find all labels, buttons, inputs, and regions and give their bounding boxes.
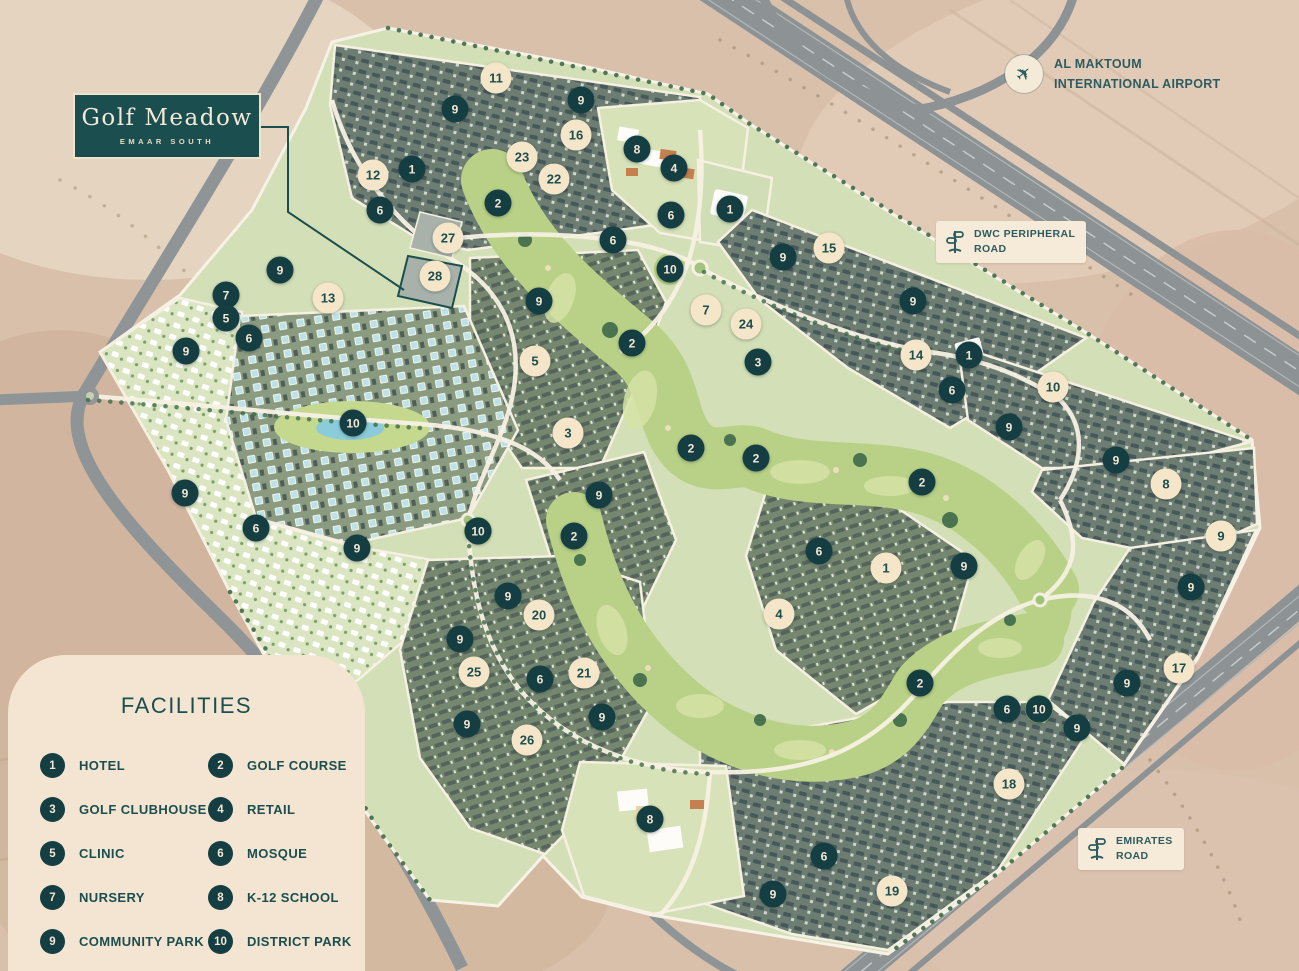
map-marker-neighborhood-13[interactable]: 13 — [313, 283, 344, 314]
map-marker-facility-9[interactable]: 9 — [1178, 574, 1205, 601]
map-marker-facility-6[interactable]: 6 — [939, 377, 966, 404]
facilities-legend: FACILITIES 1HOTEL2GOLF COURSE3GOLF CLUBH… — [8, 655, 365, 971]
legend-item-number: 5 — [40, 841, 65, 866]
map-marker-neighborhood-11[interactable]: 11 — [481, 63, 512, 94]
legend-item-label: GOLF COURSE — [247, 758, 347, 773]
brand-badge: Golf Meadow EMAAR SOUTH — [73, 93, 261, 159]
brand-title: Golf Meadow — [81, 107, 252, 130]
map-marker-neighborhood-3[interactable]: 3 — [553, 418, 584, 449]
legend-title: FACILITIES — [8, 693, 365, 719]
map-marker-facility-9[interactable]: 9 — [589, 704, 616, 731]
map-marker-facility-9[interactable]: 9 — [173, 338, 200, 365]
map-marker-facility-10[interactable]: 10 — [1026, 696, 1053, 723]
legend-item-label: K-12 SCHOOL — [247, 890, 339, 905]
emirates-road-line1: EMIRATES — [1116, 834, 1173, 849]
map-marker-neighborhood-10[interactable]: 10 — [1038, 372, 1069, 403]
map-marker-neighborhood-16[interactable]: 16 — [561, 120, 592, 151]
legend-item-number: 1 — [40, 753, 65, 778]
legend-item-label: CLINIC — [79, 846, 125, 861]
legend-item-label: COMMUNITY PARK — [79, 934, 204, 949]
map-marker-facility-9[interactable]: 9 — [344, 535, 371, 562]
map-marker-facility-6[interactable]: 6 — [236, 325, 263, 352]
map-marker-neighborhood-19[interactable]: 19 — [877, 876, 908, 907]
dwc-road-line2: ROAD — [974, 242, 1075, 257]
map-marker-neighborhood-9[interactable]: 9 — [1206, 521, 1237, 552]
map-marker-neighborhood-12[interactable]: 12 — [358, 160, 389, 191]
airport-label: ✈ AL MAKTOUM INTERNATIONAL AIRPORT — [1005, 54, 1220, 94]
map-marker-facility-9[interactable]: 9 — [568, 87, 595, 114]
map-marker-facility-9[interactable]: 9 — [1114, 670, 1141, 697]
map-marker-facility-8[interactable]: 8 — [637, 806, 664, 833]
map-marker-facility-2[interactable]: 2 — [678, 435, 705, 462]
signpost-icon — [945, 229, 965, 255]
dwc-road-line1: DWC PERIPHERAL — [974, 227, 1075, 242]
map-marker-facility-9[interactable]: 9 — [1103, 447, 1130, 474]
map-marker-facility-3[interactable]: 3 — [745, 349, 772, 376]
map-marker-neighborhood-14[interactable]: 14 — [901, 340, 932, 371]
legend-item-2: 2GOLF COURSE — [208, 753, 365, 778]
brand-subtitle: EMAAR SOUTH — [120, 137, 214, 146]
legend-items: 1HOTEL2GOLF COURSE3GOLF CLUBHOUSE4RETAIL… — [40, 753, 365, 954]
map-marker-neighborhood-22[interactable]: 22 — [539, 164, 570, 195]
map-marker-facility-9[interactable]: 9 — [760, 881, 787, 908]
legend-item-label: GOLF CLUBHOUSE — [79, 802, 207, 817]
map-marker-facility-2[interactable]: 2 — [485, 190, 512, 217]
signpost-icon — [1087, 836, 1107, 862]
map-marker-neighborhood-27[interactable]: 27 — [433, 223, 464, 254]
map-marker-neighborhood-18[interactable]: 18 — [994, 769, 1025, 800]
legend-item-1: 1HOTEL — [40, 753, 208, 778]
map-marker-facility-9[interactable]: 9 — [495, 583, 522, 610]
map-marker-facility-9[interactable]: 9 — [447, 626, 474, 653]
map-marker-facility-10[interactable]: 10 — [657, 256, 684, 283]
dwc-road-sign: DWC PERIPHERAL ROAD — [936, 221, 1086, 263]
legend-item-number: 3 — [40, 797, 65, 822]
map-marker-facility-9[interactable]: 9 — [996, 414, 1023, 441]
legend-item-label: HOTEL — [79, 758, 125, 773]
map-marker-facility-6[interactable]: 6 — [994, 696, 1021, 723]
legend-item-3: 3GOLF CLUBHOUSE — [40, 797, 208, 822]
map-marker-facility-6[interactable]: 6 — [527, 666, 554, 693]
map-marker-neighborhood-21[interactable]: 21 — [569, 658, 600, 689]
map-marker-facility-2[interactable]: 2 — [561, 523, 588, 550]
map-marker-neighborhood-24[interactable]: 24 — [731, 309, 762, 340]
map-marker-facility-5[interactable]: 5 — [213, 305, 240, 332]
map-marker-facility-9[interactable]: 9 — [951, 553, 978, 580]
map-marker-facility-9[interactable]: 9 — [526, 288, 553, 315]
map-marker-neighborhood-26[interactable]: 26 — [512, 725, 543, 756]
map-marker-facility-1[interactable]: 1 — [717, 196, 744, 223]
emirates-road-line2: ROAD — [1116, 849, 1173, 864]
map-marker-facility-9[interactable]: 9 — [586, 482, 613, 509]
map-marker-neighborhood-23[interactable]: 23 — [507, 142, 538, 173]
map-marker-facility-1[interactable]: 1 — [399, 156, 426, 183]
map-marker-facility-1[interactable]: 1 — [956, 342, 983, 369]
map-marker-neighborhood-4[interactable]: 4 — [764, 599, 795, 630]
legend-item-7: 7NURSERY — [40, 885, 208, 910]
map-marker-facility-6[interactable]: 6 — [806, 538, 833, 565]
map-marker-facility-10[interactable]: 10 — [340, 410, 367, 437]
map-marker-facility-8[interactable]: 8 — [624, 136, 651, 163]
map-marker-neighborhood-1[interactable]: 1 — [871, 553, 902, 584]
legend-item-6: 6MOSQUE — [208, 841, 365, 866]
legend-item-9: 9COMMUNITY PARK — [40, 929, 208, 954]
legend-item-number: 6 — [208, 841, 233, 866]
airport-label-line2: INTERNATIONAL AIRPORT — [1054, 74, 1220, 94]
emirates-road-sign: EMIRATES ROAD — [1078, 828, 1184, 870]
airplane-icon: ✈ — [1005, 55, 1043, 93]
map-marker-facility-9[interactable]: 9 — [172, 480, 199, 507]
map-marker-facility-9[interactable]: 9 — [1064, 715, 1091, 742]
legend-item-label: RETAIL — [247, 802, 295, 817]
map-marker-facility-9[interactable]: 9 — [900, 288, 927, 315]
legend-item-label: MOSQUE — [247, 846, 307, 861]
map-marker-neighborhood-28[interactable]: 28 — [420, 261, 451, 292]
legend-item-number: 8 — [208, 885, 233, 910]
legend-item-label: NURSERY — [79, 890, 145, 905]
legend-item-4: 4RETAIL — [208, 797, 365, 822]
map-marker-facility-2[interactable]: 2 — [743, 445, 770, 472]
map-marker-facility-4[interactable]: 4 — [661, 155, 688, 182]
masterplan-page: 1116231222271528137241451038914201725212… — [0, 0, 1299, 971]
map-marker-neighborhood-7[interactable]: 7 — [691, 295, 722, 326]
legend-item-10: 10DISTRICT PARK — [208, 929, 365, 954]
legend-item-number: 9 — [40, 929, 65, 954]
legend-item-number: 4 — [208, 797, 233, 822]
airport-label-line1: AL MAKTOUM — [1054, 54, 1220, 74]
legend-item-number: 7 — [40, 885, 65, 910]
map-marker-neighborhood-15[interactable]: 15 — [814, 233, 845, 264]
map-marker-facility-9[interactable]: 9 — [770, 244, 797, 271]
map-marker-neighborhood-17[interactable]: 17 — [1164, 653, 1195, 684]
legend-item-label: DISTRICT PARK — [247, 934, 352, 949]
map-marker-facility-10[interactable]: 10 — [465, 518, 492, 545]
map-marker-neighborhood-5[interactable]: 5 — [520, 346, 551, 377]
map-marker-neighborhood-25[interactable]: 25 — [459, 657, 490, 688]
map-marker-neighborhood-8[interactable]: 8 — [1151, 469, 1182, 500]
map-marker-facility-2[interactable]: 2 — [619, 330, 646, 357]
map-marker-facility-6[interactable]: 6 — [658, 202, 685, 229]
map-marker-facility-2[interactable]: 2 — [909, 469, 936, 496]
legend-item-number: 2 — [208, 753, 233, 778]
map-marker-facility-6[interactable]: 6 — [367, 197, 394, 224]
map-marker-facility-2[interactable]: 2 — [907, 670, 934, 697]
map-marker-facility-6[interactable]: 6 — [811, 843, 838, 870]
map-marker-facility-9[interactable]: 9 — [442, 96, 469, 123]
map-marker-neighborhood-20[interactable]: 20 — [524, 600, 555, 631]
legend-item-5: 5CLINIC — [40, 841, 208, 866]
map-marker-facility-6[interactable]: 6 — [600, 227, 627, 254]
legend-item-number: 10 — [208, 929, 233, 954]
map-marker-facility-9[interactable]: 9 — [267, 257, 294, 284]
map-marker-facility-9[interactable]: 9 — [454, 711, 481, 738]
legend-item-8: 8K-12 SCHOOL — [208, 885, 365, 910]
map-marker-facility-6[interactable]: 6 — [243, 515, 270, 542]
